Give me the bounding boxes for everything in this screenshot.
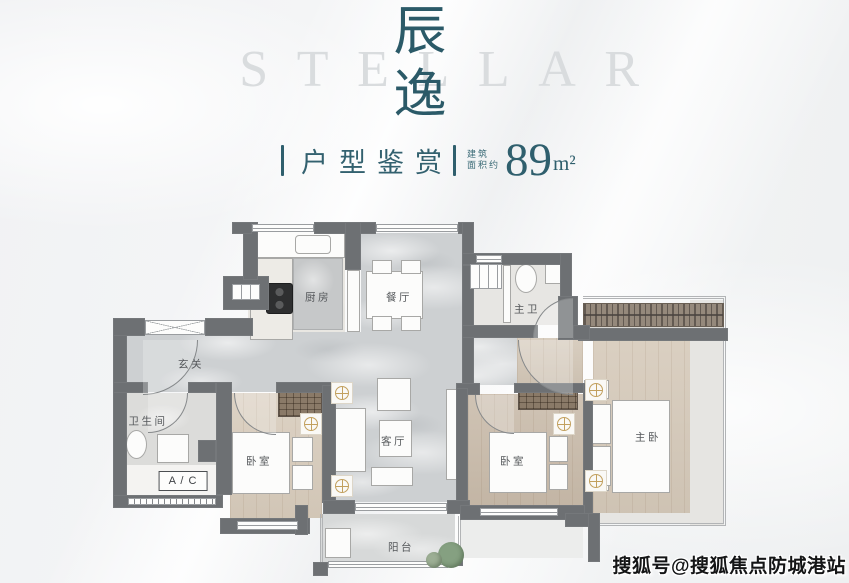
plant-icon <box>438 542 464 568</box>
window <box>480 508 558 516</box>
window <box>145 320 205 335</box>
room-label-kitchen: 厨房 <box>305 290 331 305</box>
window <box>252 224 314 232</box>
room-label-master-bath: 主卫 <box>514 302 540 317</box>
glass-frame <box>320 514 323 564</box>
floorplan-poster: STELLAR 辰 逸 户型鉴赏 建筑 面积约 89 m² 厨房餐厅主卫玄关卫生… <box>0 0 849 583</box>
wall <box>113 318 145 336</box>
wall <box>583 383 593 515</box>
wall <box>323 500 355 514</box>
stove <box>266 283 293 314</box>
plant-icon <box>426 552 442 568</box>
pillow <box>590 404 611 444</box>
wall <box>573 325 590 340</box>
room-label-master-bedroom: 主卧 <box>635 430 661 445</box>
toilet <box>126 430 147 459</box>
wall <box>188 382 216 393</box>
chair <box>372 260 392 274</box>
ceiling-lamp-icon <box>331 475 353 497</box>
rug <box>371 467 413 486</box>
bed-master <box>612 400 670 493</box>
fridge <box>347 270 360 332</box>
wall <box>232 222 252 234</box>
wall <box>198 440 216 462</box>
sohu-watermark: 搜狐号@搜狐焦点防城港站 <box>612 551 846 578</box>
pillow <box>549 464 568 490</box>
ceiling-lamp-icon <box>585 470 607 492</box>
wall <box>578 328 728 341</box>
wall <box>588 513 600 562</box>
ceiling-lamp-icon <box>300 413 322 435</box>
room-label-bedroom-2: 卧室 <box>500 454 526 469</box>
room-label-bedroom-1: 卧室 <box>246 454 272 469</box>
wall <box>205 318 253 336</box>
wall <box>462 325 538 338</box>
wall <box>345 222 361 270</box>
room-label-balcony: 阳台 <box>388 540 414 555</box>
shower <box>157 434 189 463</box>
ceiling-lamp-icon <box>585 379 607 401</box>
room-label-ac: A / C <box>159 471 208 491</box>
pillow <box>292 465 313 490</box>
chair <box>372 316 392 331</box>
chair <box>401 316 421 331</box>
sideboard <box>377 378 411 411</box>
room-label-bathroom: 卫生间 <box>129 414 168 429</box>
pillow <box>292 437 313 462</box>
room-label-living: 客厅 <box>381 434 407 449</box>
ceiling-lamp-icon <box>553 413 575 435</box>
wall <box>456 388 468 502</box>
pillow <box>549 436 568 462</box>
window <box>355 503 447 511</box>
room-label-dining: 餐厅 <box>386 290 412 305</box>
wall <box>295 505 308 535</box>
washer <box>325 528 351 558</box>
wall <box>113 318 127 508</box>
window <box>476 255 502 263</box>
wall <box>313 562 328 576</box>
bath-partition <box>503 265 511 323</box>
window <box>232 284 260 300</box>
floor-plan: 厨房餐厅主卫玄关卫生间A / C卧室客厅卧室主卧阳台 <box>0 0 849 583</box>
room-label-foyer: 玄关 <box>178 357 204 372</box>
window <box>128 498 216 505</box>
ceiling-lamp-icon <box>331 382 353 404</box>
toilet <box>515 264 537 293</box>
window <box>376 224 458 232</box>
wall <box>216 382 232 495</box>
chair <box>401 260 421 274</box>
window <box>237 521 298 530</box>
deck-hatch <box>583 303 724 327</box>
kitchen-sink <box>295 235 331 254</box>
window <box>470 264 502 289</box>
